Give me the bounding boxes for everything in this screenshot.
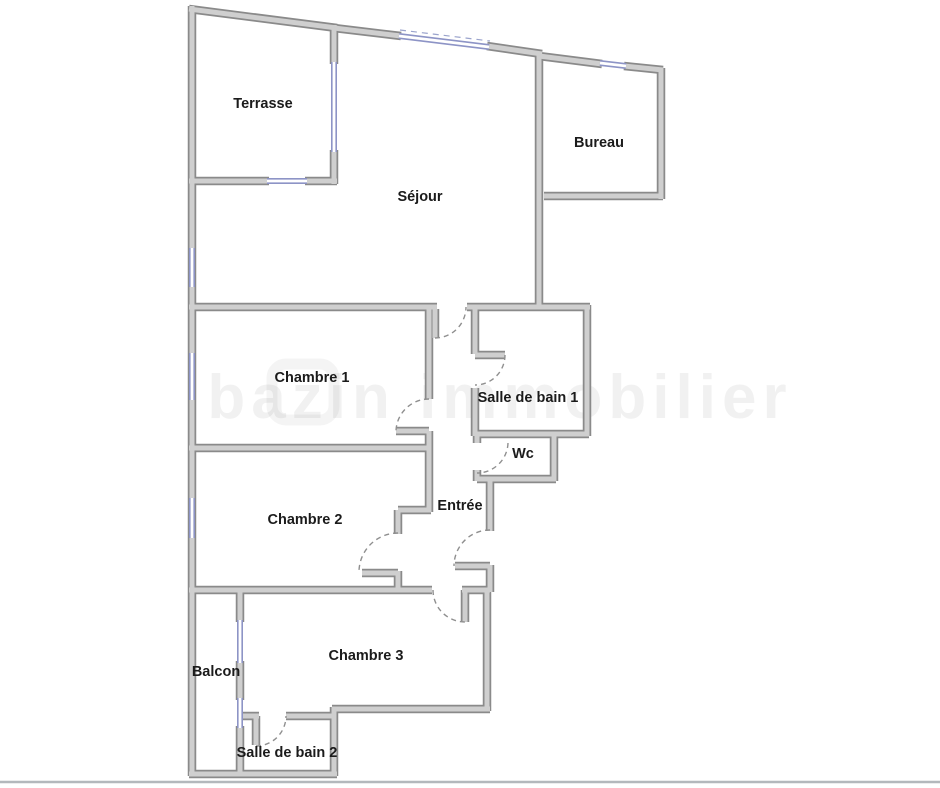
floor-plan-drawing: bazin immobilier (0, 0, 940, 788)
room-label-terrasse: Terrasse (233, 96, 292, 112)
room-label-chambre1: Chambre 1 (275, 370, 350, 386)
room-label-balcon: Balcon (192, 664, 240, 680)
door-arc-wc (477, 443, 508, 473)
door-arc-sejour-entree (435, 307, 466, 338)
room-label-bureau: Bureau (574, 135, 624, 151)
room-label-sejour: Séjour (397, 189, 442, 205)
door-arc-entry (454, 530, 490, 566)
room-label-sdb1: Salle de bain 1 (478, 390, 579, 406)
door-arc-chambre3 (433, 590, 465, 622)
room-label-sdb2: Salle de bain 2 (237, 745, 338, 761)
room-label-entree: Entrée (437, 498, 482, 514)
room-label-wc: Wc (512, 446, 534, 462)
floor-plan: bazin immobilier (0, 0, 940, 788)
room-label-chambre2: Chambre 2 (268, 512, 343, 528)
room-label-chambre3: Chambre 3 (329, 648, 404, 664)
door-arc-sdb2 (256, 716, 286, 746)
door-arc-chambre2 (359, 533, 398, 572)
